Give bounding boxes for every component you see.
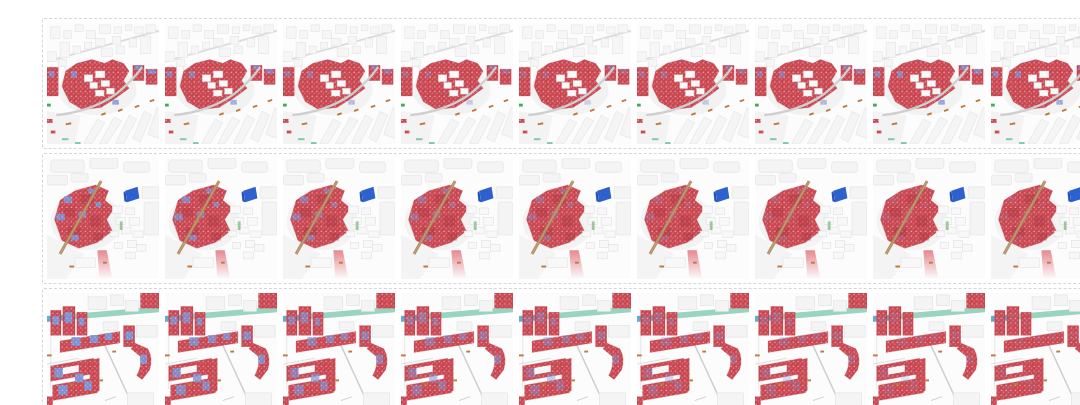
sequence-row-3-frame-7 [755, 293, 867, 405]
sequence-row-2-frame-3 [283, 158, 395, 279]
sequence-row-3-frame-3 [283, 293, 395, 405]
sequence-row-3-frame-6 [637, 293, 749, 405]
sequence-row-2-frame-1 [47, 158, 159, 279]
sequence-row-3-frame-8 [873, 293, 985, 405]
sequence-row-2-frame-9 [991, 158, 1080, 279]
sequence-row-2-frame-8 [873, 158, 985, 279]
sequence-row-1-frame-2 [165, 23, 277, 144]
sequence-row-2-frame-2 [165, 158, 277, 279]
sequence-row-1-frame-5 [519, 23, 631, 144]
sequence-row-1-frame-8 [873, 23, 985, 144]
sequence-row-1-frame-4 [401, 23, 513, 144]
sequence-row-1-frame-6 [637, 23, 749, 144]
sequence-row-3-frame-1 [47, 293, 159, 405]
frame-sequence-figure [40, 16, 1080, 405]
sequence-row-3 [42, 288, 1080, 405]
sequence-row-2-frame-7 [755, 158, 867, 279]
sequence-row-2-frame-6 [637, 158, 749, 279]
sequence-row-1 [42, 18, 1080, 149]
sequence-row-3-frame-4 [401, 293, 513, 405]
sequence-row-2 [42, 153, 1080, 284]
sequence-row-1-frame-1 [47, 23, 159, 144]
sequence-row-2-frame-4 [401, 158, 513, 279]
sequence-row-1-frame-9 [991, 23, 1080, 144]
sequence-row-1-frame-7 [755, 23, 867, 144]
sequence-row-1-frame-3 [283, 23, 395, 144]
sequence-row-3-frame-9 [991, 293, 1080, 405]
sequence-row-3-frame-2 [165, 293, 277, 405]
sequence-row-2-frame-5 [519, 158, 631, 279]
sequence-row-3-frame-5 [519, 293, 631, 405]
